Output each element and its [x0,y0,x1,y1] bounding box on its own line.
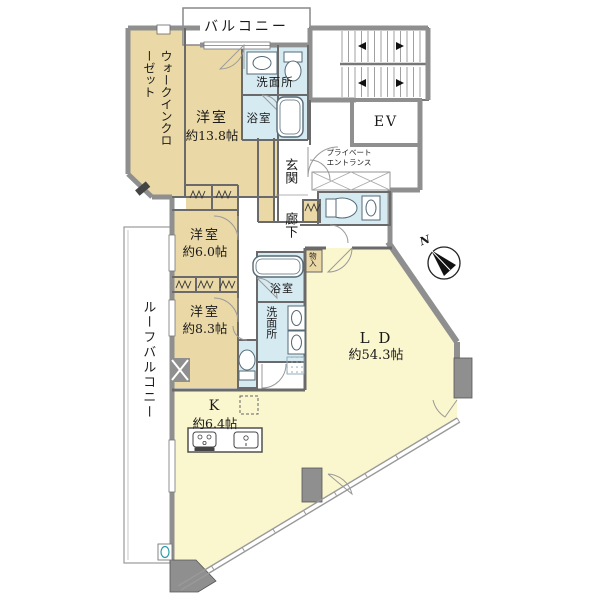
linen-storage [287,357,304,374]
kitchen-label: K約6.4帖 [180,398,250,431]
private-entrance-label: プライベートエントランス [314,148,384,168]
corridor-label: 廊下 [281,212,297,254]
toilet-lower-fixture [239,350,255,380]
roof-balcony-label: ルーフバルコニー [139,300,155,470]
bathroom-upper-label: 浴室 [233,111,285,125]
washroom-upper-label: 洗面所 [242,75,308,89]
balcony-label: バルコニー [183,19,310,37]
bedroom-8-3-label: 洋室約8.3帖 [172,305,238,337]
storage-label: 物入 [308,252,317,272]
floorplan: バルコニー ウォークインクローゼット 洋室約13.8帖 洗面所 浴室 EV プラ… [0,0,600,600]
pipe-shaft [170,358,190,382]
balcony-drain [158,544,172,560]
wall-pier-east [454,358,472,398]
shoe-closet [258,138,274,222]
north-compass [428,247,460,279]
living-dining-label: L D約54.3帖 [328,329,424,364]
elevator-label: EV [352,114,420,132]
washroom-lower-label: 洗面所 [264,306,278,362]
bathroom-lower-label: 浴室 [258,282,306,296]
floorplan-drawing [0,0,600,600]
bathtub-lower [253,256,303,277]
entrance-label: 玄関 [281,158,297,200]
closet-row-mid [172,277,238,292]
wall-pier-south [302,468,322,502]
washroom-lower-sinks [288,306,305,354]
kitchen-counter [188,428,262,452]
bedroom-6-0-label: 洋室約6.0帖 [172,228,238,260]
entrance-mat [312,172,390,190]
